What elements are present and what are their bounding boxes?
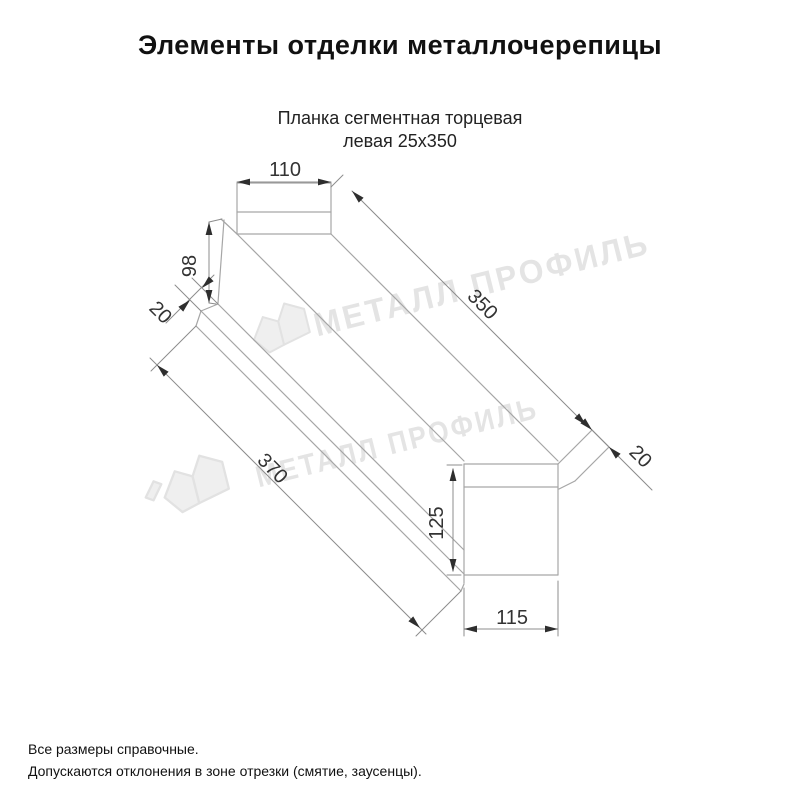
dimension-labels: 110 98 20 350 370 20 125 115 bbox=[145, 159, 656, 629]
technical-drawing: МЕТАЛЛ ПРОФИЛЬ МЕТАЛЛ ПРОФИЛЬ bbox=[0, 0, 800, 800]
watermark-text: МЕТАЛЛ ПРОФИЛЬ bbox=[252, 392, 541, 494]
footer-note-1: Все размеры справочные. bbox=[28, 738, 422, 760]
dim-end-width-label: 115 bbox=[496, 607, 528, 629]
dim-left-height-label: 98 bbox=[179, 255, 201, 277]
watermark-text: МЕТАЛЛ ПРОФИЛЬ bbox=[310, 224, 654, 343]
watermark-bottom: МЕТАЛЛ ПРОФИЛЬ bbox=[139, 373, 542, 521]
part-outline bbox=[196, 183, 609, 591]
footer-note-2: Допускаются отклонения в зоне отрезки (с… bbox=[28, 760, 422, 782]
footer-notes: Все размеры справочные. Допускаются откл… bbox=[28, 738, 422, 782]
drawing-page: Элементы отделки металлочерепицы Планка … bbox=[0, 0, 800, 800]
dim-left-hem-label: 20 bbox=[145, 297, 176, 328]
watermark-top: МЕТАЛЛ ПРОФИЛЬ bbox=[247, 214, 653, 358]
dim-end-height-label: 125 bbox=[426, 506, 448, 539]
dim-top-width-label: 110 bbox=[269, 159, 301, 181]
metall-profil-logo-icon bbox=[247, 299, 312, 355]
metall-profil-logo-icon bbox=[139, 451, 232, 520]
